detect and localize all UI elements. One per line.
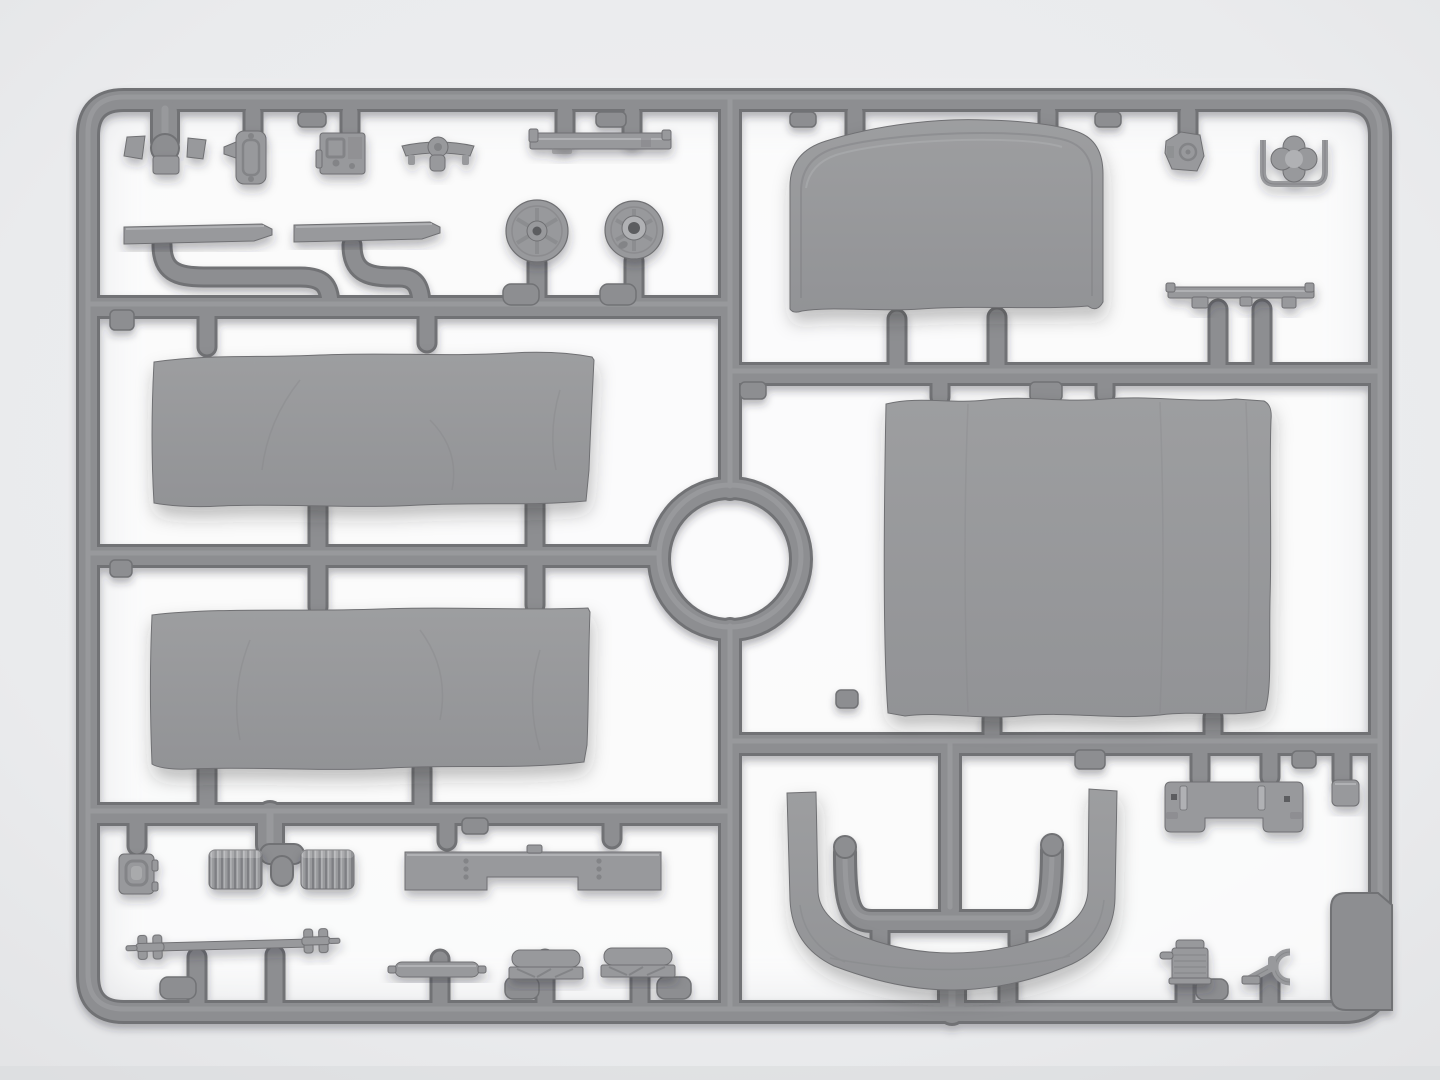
anchor-ball-left <box>834 836 856 858</box>
blank-gate-pad <box>1331 893 1392 1010</box>
seat-bench-left <box>509 950 583 979</box>
sprue-svg <box>0 0 1440 1080</box>
corrugated-hose-left <box>209 850 262 889</box>
wheel-solid-hub <box>506 200 568 262</box>
cargo-bed-canvas-tarp <box>884 398 1271 717</box>
gearbox-block <box>316 133 365 174</box>
anchor-ball-right <box>1041 834 1063 856</box>
exhaust-pipe <box>388 962 486 977</box>
tread-plate-left <box>124 224 272 244</box>
mount-bracket-small <box>1165 132 1204 171</box>
tread-plate-right <box>294 222 440 242</box>
cube-block <box>1332 780 1359 806</box>
wheel-open-hub <box>605 201 663 259</box>
cab-canvas-top <box>790 120 1103 312</box>
canvas-tarp-lower <box>151 608 591 769</box>
table-edge-shade <box>0 1066 1440 1080</box>
corrugated-hose-right <box>301 850 354 889</box>
seat-bench-right <box>601 948 675 977</box>
sprue-photo <box>0 0 1440 1080</box>
air-box <box>119 854 158 894</box>
canvas-tarp-upper <box>152 352 594 506</box>
